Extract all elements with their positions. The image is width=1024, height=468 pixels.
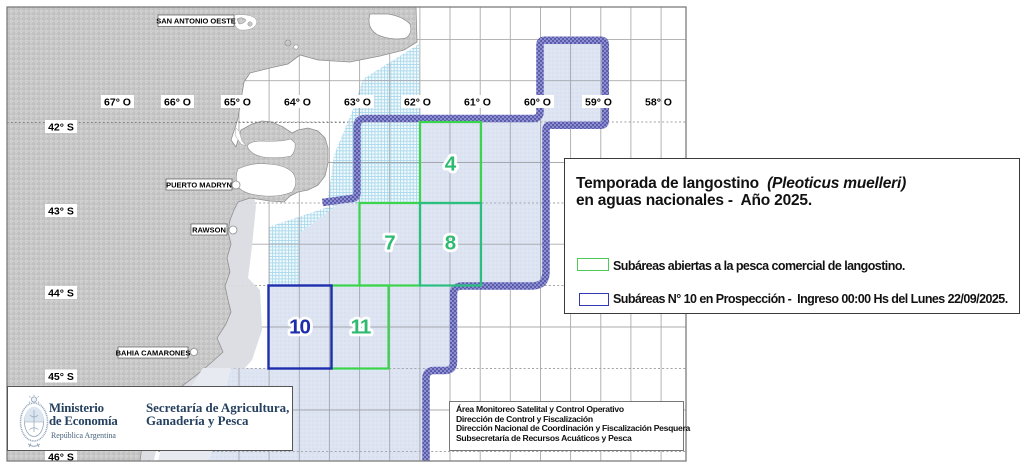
svg-text:64° O: 64° O [284, 97, 311, 109]
svg-text:66° O: 66° O [164, 97, 191, 109]
svg-text:63° O: 63° O [344, 97, 371, 109]
svg-text:67° O: 67° O [104, 97, 131, 109]
svg-text:61° O: 61° O [464, 97, 491, 109]
svg-text:SAN ANTONIO OESTE: SAN ANTONIO OESTE [156, 17, 236, 26]
svg-text:62° O: 62° O [404, 97, 431, 109]
svg-text:58° O: 58° O [645, 97, 672, 109]
svg-text:43° S: 43° S [48, 206, 74, 218]
svg-text:RAWSON: RAWSON [192, 226, 226, 235]
svg-text:46° S: 46° S [48, 452, 74, 464]
svg-text:60° O: 60° O [524, 97, 551, 109]
svg-text:8: 8 [445, 232, 456, 255]
svg-text:BAHIA CAMARONES: BAHIA CAMARONES [116, 349, 191, 358]
svg-text:7: 7 [384, 232, 395, 255]
svg-text:65° O: 65° O [224, 97, 251, 109]
svg-text:42° S: 42° S [48, 122, 74, 134]
svg-text:PUERTO MADRYN: PUERTO MADRYN [166, 181, 232, 190]
svg-text:44° S: 44° S [48, 288, 74, 300]
svg-text:59° O: 59° O [585, 97, 612, 109]
svg-text:11: 11 [351, 316, 371, 339]
svg-text:4: 4 [445, 153, 457, 176]
svg-text:45° S: 45° S [48, 371, 74, 383]
svg-text:10: 10 [289, 316, 310, 339]
